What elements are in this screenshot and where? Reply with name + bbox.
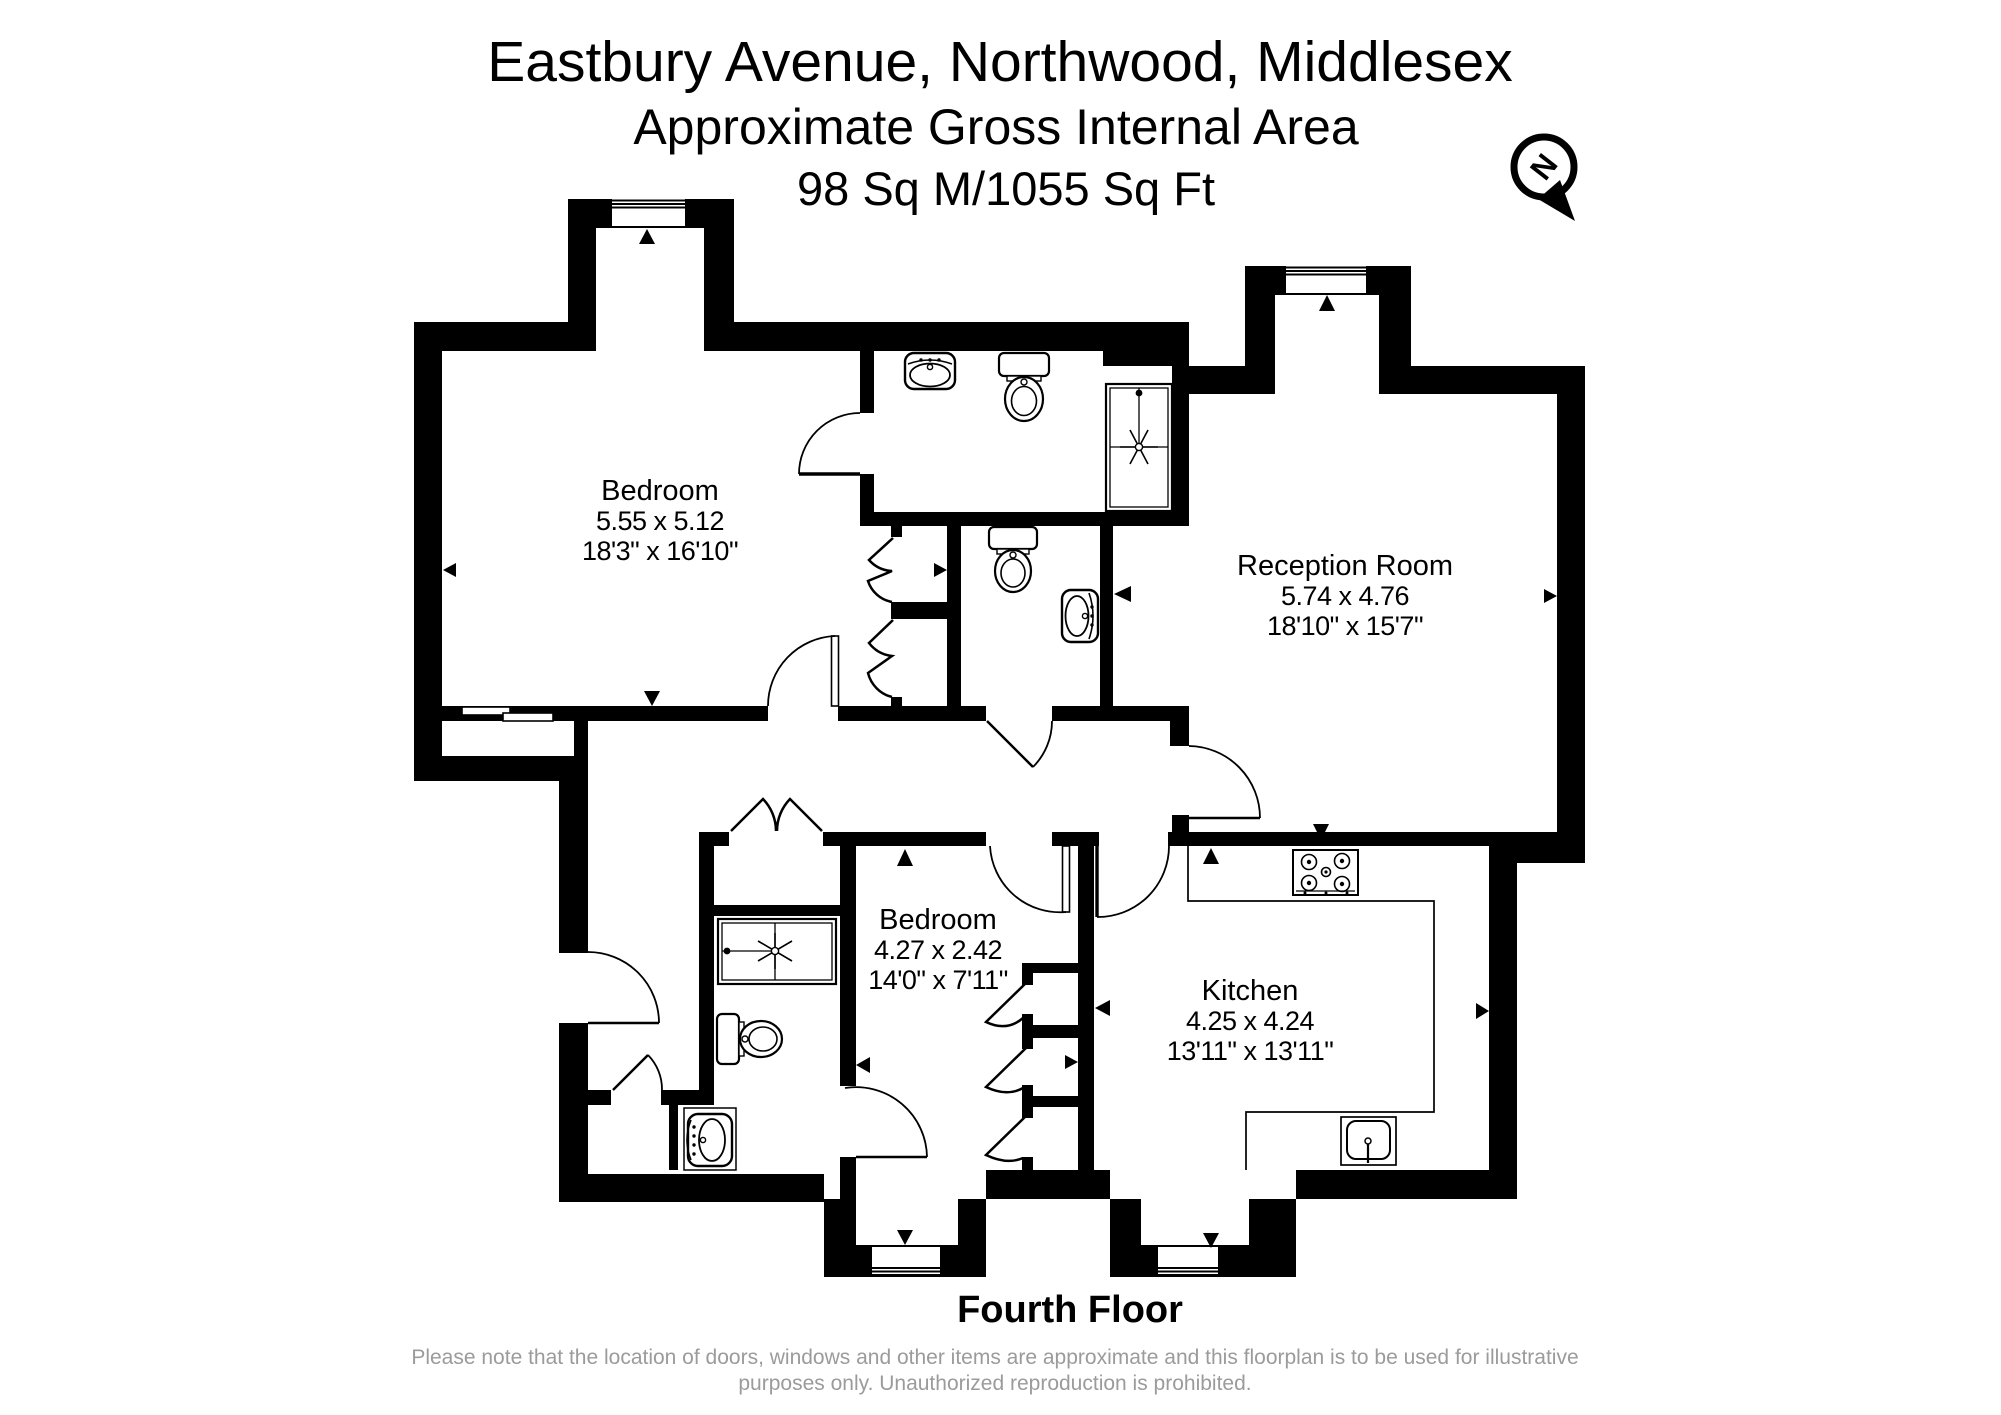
svg-text:Bedroom: Bedroom (601, 475, 719, 507)
svg-text:14'0" x 7'11": 14'0" x 7'11" (868, 965, 1008, 995)
svg-text:4.27 x 2.42: 4.27 x 2.42 (874, 935, 1002, 965)
svg-text:5.74 x 4.76: 5.74 x 4.76 (1281, 581, 1409, 611)
svg-text:Please note that the location: Please note that the location of doors, … (411, 1346, 1578, 1369)
svg-text:Bedroom: Bedroom (879, 904, 997, 936)
svg-text:5.55 x 5.12: 5.55 x 5.12 (596, 506, 724, 536)
svg-text:4.25 x 4.24: 4.25 x 4.24 (1186, 1006, 1315, 1036)
svg-text:Fourth Floor: Fourth Floor (957, 1289, 1183, 1331)
svg-text:18'10" x 15'7": 18'10" x 15'7" (1267, 611, 1423, 641)
svg-text:Kitchen: Kitchen (1202, 975, 1299, 1007)
svg-text:Reception Room: Reception Room (1237, 550, 1453, 582)
svg-text:Approximate Gross Internal Are: Approximate Gross Internal Area (633, 99, 1359, 155)
svg-text:13'11" x 13'11": 13'11" x 13'11" (1167, 1036, 1334, 1066)
svg-text:18'3" x 16'10": 18'3" x 16'10" (582, 536, 738, 566)
svg-text:98 Sq M/1055 Sq Ft: 98 Sq M/1055 Sq Ft (797, 162, 1215, 215)
svg-text:purposes only. Unauthorized re: purposes only. Unauthorized reproduction… (738, 1372, 1251, 1395)
svg-text:Eastbury Avenue, Northwood, Mi: Eastbury Avenue, Northwood, Middlesex (487, 30, 1513, 94)
